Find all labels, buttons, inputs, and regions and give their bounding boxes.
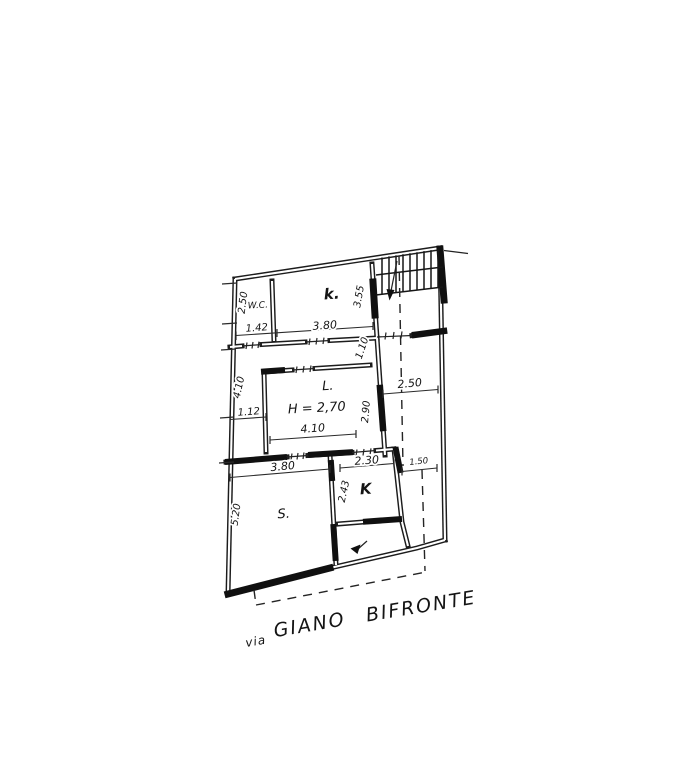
room-label-bedroom: k. xyxy=(323,284,340,303)
dim-living-depth: 2.90 xyxy=(360,400,373,423)
dim-kitchen-width: 2.30 xyxy=(354,453,379,468)
room-label-kitchen: K xyxy=(359,480,373,499)
street-prefix: via xyxy=(244,633,267,650)
stair-arrow-head xyxy=(387,289,395,301)
boundary-tick xyxy=(444,251,468,254)
room-label-wc: W.C. xyxy=(248,300,269,311)
dashed-line-lower-right xyxy=(422,470,425,571)
dim-terrace-lower-width: 1.50 xyxy=(409,456,429,468)
dim-soggiorno-depth: 5.20 xyxy=(230,503,244,527)
room-label-living-height: H = 2,70 xyxy=(288,400,347,418)
dim-bedroom-height: 3.55 xyxy=(352,285,367,309)
floor-plan-canvas: 1.42 3.80 2.50 3.55 1.10 4.10 1.12 4.10 … xyxy=(0,0,682,768)
dim-wc-width: 1.42 xyxy=(245,322,268,335)
dim-kitchen-depth: 2.43 xyxy=(337,479,352,503)
street-name: GIANO BIFRONTE xyxy=(272,586,478,642)
room-label-living: L. xyxy=(322,379,334,395)
dim-living-width: 4.10 xyxy=(300,421,325,436)
dim-bedroom-width: 3.80 xyxy=(312,318,337,333)
dim-closet-width: 1.12 xyxy=(237,406,260,419)
street-label: via GIANO BIFRONTE xyxy=(243,586,479,649)
dim-soggiorno-width: 3.80 xyxy=(270,459,296,474)
entry-arrow xyxy=(351,541,368,554)
dim-terrace-width: 2.50 xyxy=(397,376,423,391)
room-label-soggiorno: S. xyxy=(277,507,290,523)
scanned-floor-plan-page: 1.42 3.80 2.50 3.55 1.10 4.10 1.12 4.10 … xyxy=(0,0,682,768)
